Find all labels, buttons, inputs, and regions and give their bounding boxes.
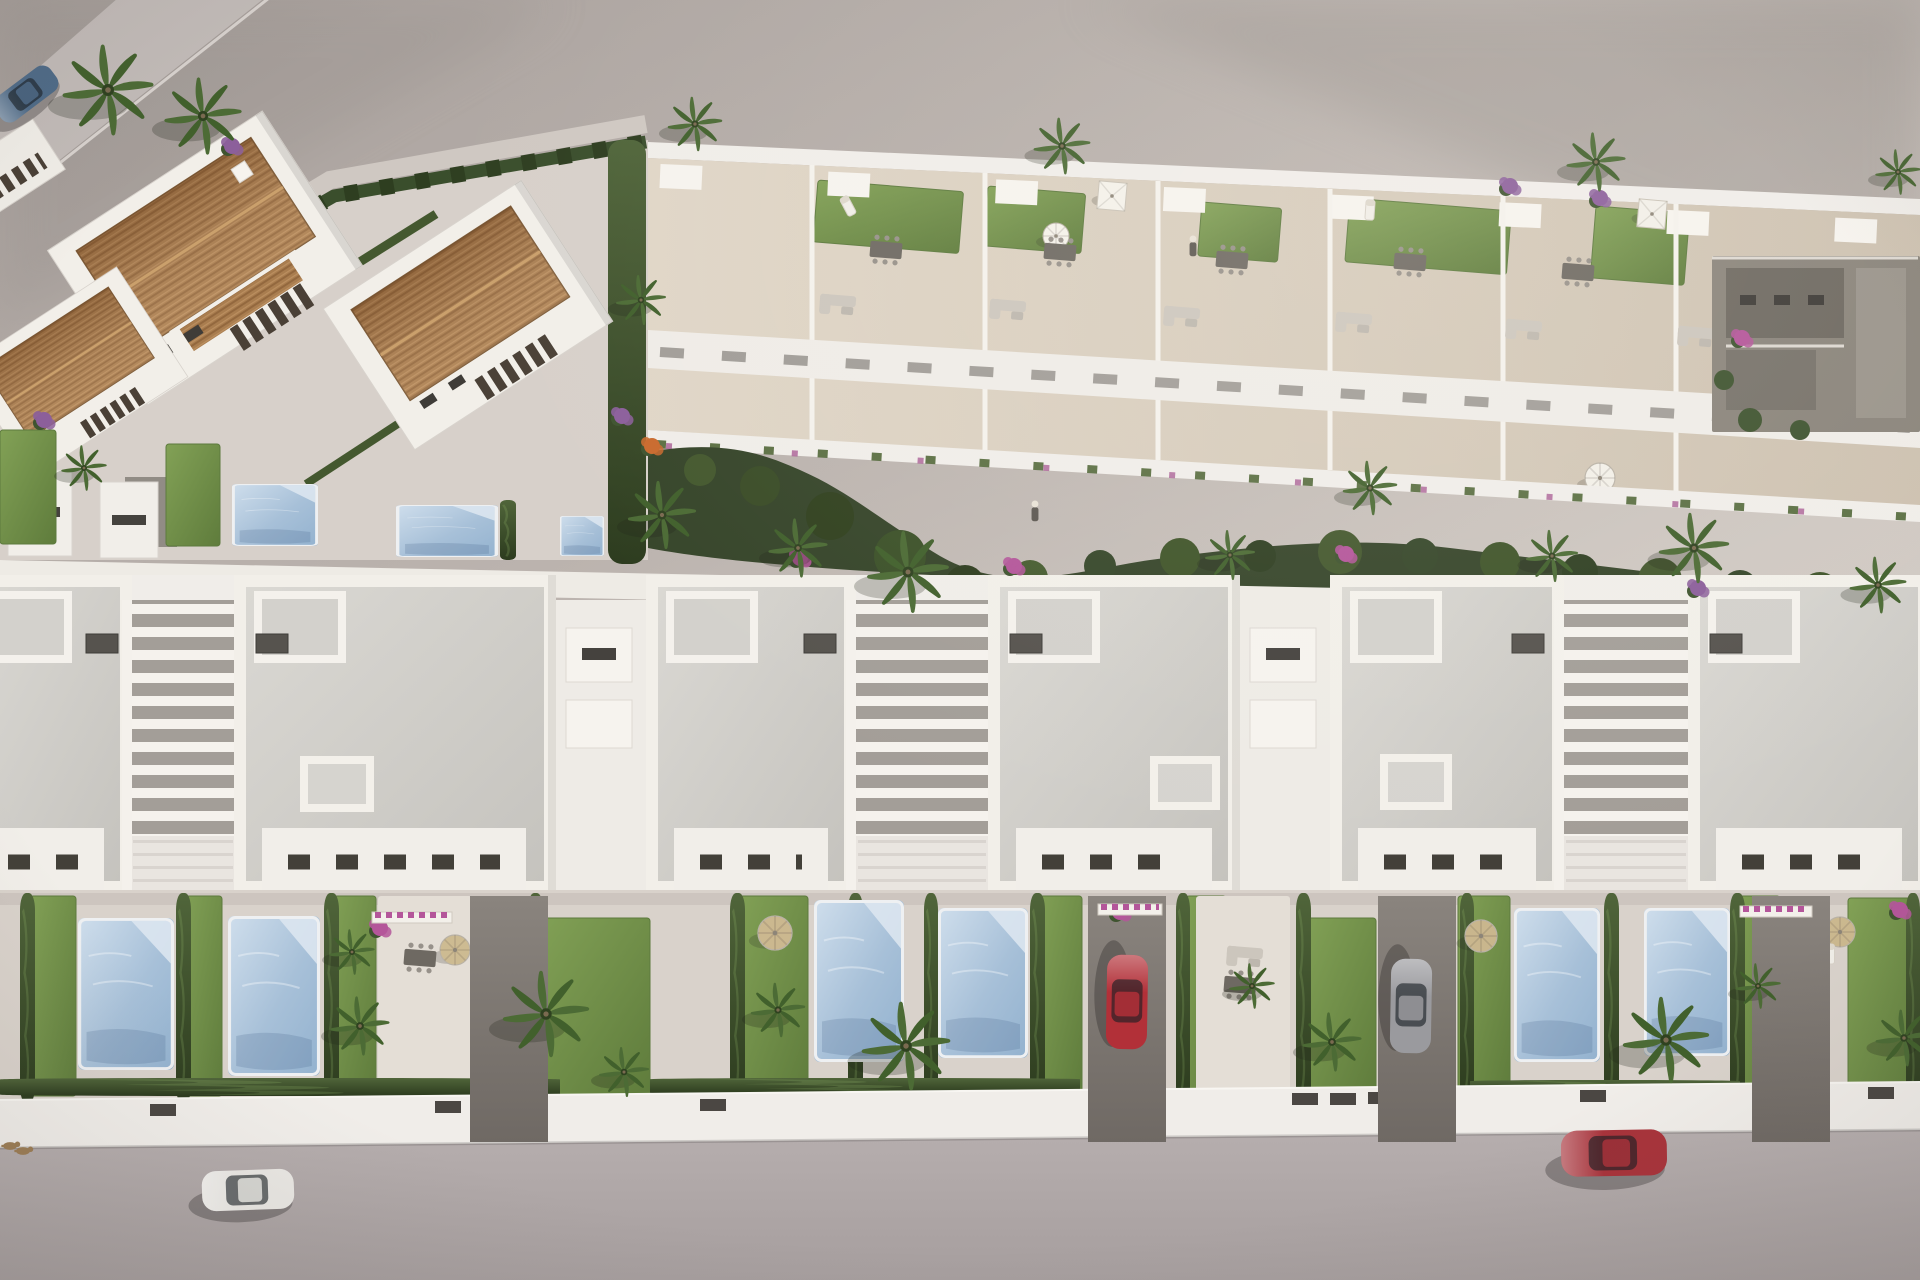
aerial-render-image: Aerial 3D architectural rendering of a M… [0,0,1920,1280]
render-canvas: Aerial 3D architectural rendering of a M… [0,0,1920,1280]
vignette [0,0,1920,1280]
